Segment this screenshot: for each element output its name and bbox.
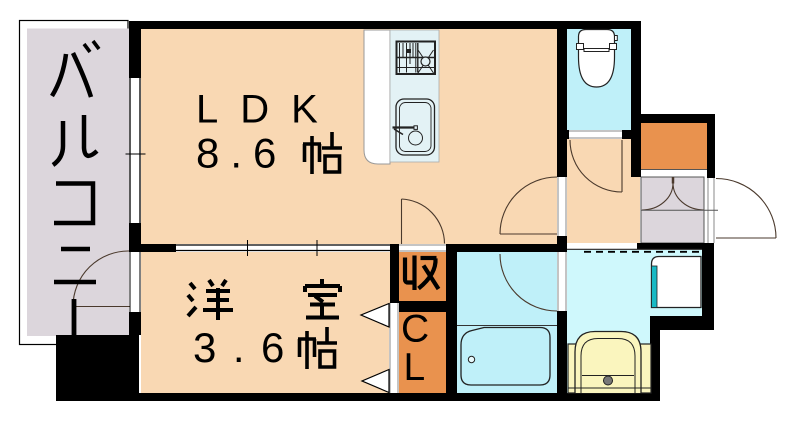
svg-text:3.6: 3.6 bbox=[193, 324, 301, 371]
svg-text:LDK: LDK bbox=[196, 88, 340, 132]
svg-text:8.6: 8.6 bbox=[196, 130, 287, 177]
svg-text:C: C bbox=[401, 308, 429, 351]
svg-text:L: L bbox=[404, 346, 426, 389]
